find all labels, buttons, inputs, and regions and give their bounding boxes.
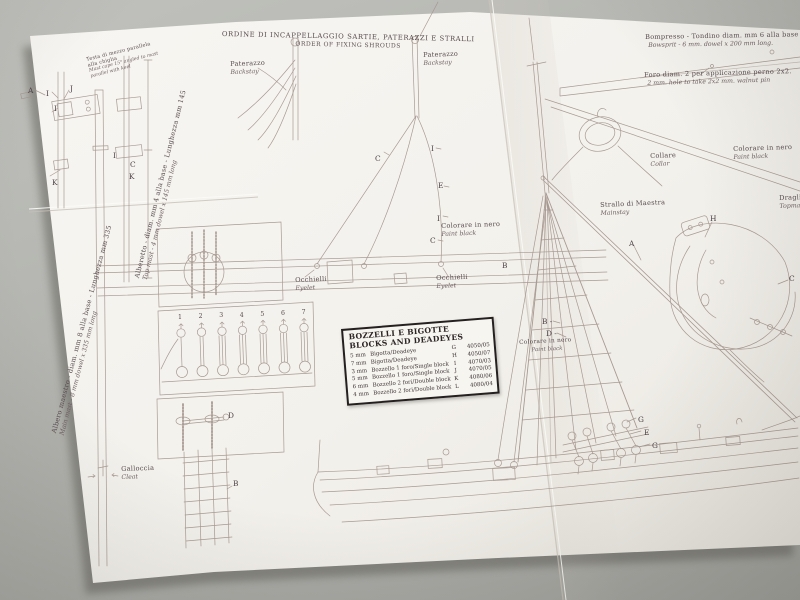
paper-sheet: [30, 12, 800, 583]
topmast-stay-label-italian: Draglia: [779, 193, 800, 202]
annotation-letter: K: [52, 178, 58, 187]
cleat-label-english: Cleat: [121, 472, 154, 481]
annotation-letter: D: [228, 411, 234, 420]
annotation-letter: I: [54, 104, 57, 113]
paint-black-label-mast: Colorare in nero Paint black: [519, 337, 572, 354]
parts-table-cell-letter: L: [452, 383, 463, 391]
eyelet-label-right: Occhielli Eyelet: [436, 273, 468, 291]
backstay-label-italian: Paterazzo: [423, 50, 458, 60]
eyelet-label-italian: Occhielli: [295, 275, 327, 285]
plan-sheet-line-art: [0, 0, 800, 600]
sequence-number: 7: [302, 309, 306, 316]
parts-table-cell-size: 4 mm: [353, 390, 373, 399]
parts-table-cell-letter: I: [450, 360, 461, 368]
collar-label: Collare Collar: [650, 151, 677, 169]
annotation-letter: C: [130, 160, 136, 169]
sequence-number: 2: [199, 313, 203, 320]
mainstay-label: Strallo di Maestra Mainstay: [600, 198, 666, 217]
annotation-letter: C: [789, 274, 795, 283]
annotation-letter: A: [629, 239, 634, 248]
parts-table-cell-letter: J: [451, 368, 462, 376]
backstay-label-italian: Paterazzo: [230, 59, 265, 69]
annotation-letter: A: [28, 86, 33, 95]
annotation-letter: G: [652, 441, 658, 450]
parts-table-cell-code: 4080/04: [462, 381, 493, 390]
sequence-number: 6: [281, 310, 285, 317]
annotation-letter: J: [70, 84, 73, 93]
annotation-letter: E: [438, 181, 443, 190]
collar-label-italian: Collare: [650, 151, 676, 160]
annotation-letter: I: [437, 214, 440, 223]
eyelet-label-english: Eyelet: [436, 281, 468, 290]
sequence-number: 5: [260, 311, 264, 318]
parts-table: BOZZELLI E BIGOTTE BLOCKS AND DEADEYES 5…: [341, 317, 500, 406]
parts-table-cell-letter: K: [451, 375, 462, 383]
sequence-number: 3: [219, 312, 223, 319]
annotation-letter: D -: [546, 329, 557, 338]
annotation-letter: B -: [542, 317, 552, 326]
sequence-number: 1: [178, 314, 182, 321]
eyelet-label-left: Occhielli Eyelet: [295, 275, 327, 293]
backstay-label-english: Backstay: [230, 67, 265, 76]
annotation-letter: K: [129, 172, 135, 181]
parts-table-cell-letter: G: [449, 345, 460, 353]
annotation-letter: C: [430, 236, 436, 245]
collar-label-english: Collar: [650, 160, 676, 169]
bowsprit-note: Bompresso - Tondino diam. mm 6 alla base…: [645, 30, 800, 50]
cleat-label: Galloccia Cleat: [121, 464, 155, 482]
eyelet-label-english: Eyelet: [295, 283, 327, 292]
photo-of-ship-plan-sheet: ORDINE DI INCAPPELLAGGIO SARTIE, PATERAZ…: [0, 0, 800, 600]
annotation-letter: H: [710, 214, 716, 223]
annotation-letter: G: [638, 415, 644, 424]
topmast-stay-label-english: Topmast: [779, 202, 800, 211]
eyelet-label-italian: Occhielli: [436, 273, 468, 283]
sequence-number: 4: [240, 312, 244, 319]
annotation-letter: B: [233, 479, 238, 488]
annotation-letter: I: [431, 144, 434, 153]
annotation-letter: B: [502, 261, 507, 270]
topmast-stay-label: Draglia Topmast: [779, 193, 800, 211]
backstay-label-english: Backstay: [423, 58, 458, 67]
backstay-label-left: Paterazzo Backstay: [230, 59, 265, 77]
parts-table-rows: 5 mmBigotta/DeadeyeG4050/057 mmBigotta/D…: [350, 343, 493, 399]
parts-table-cell-letter: H: [449, 353, 460, 361]
annotation-letter: E: [644, 428, 649, 437]
backstay-label-right: Paterazzo Backstay: [423, 50, 458, 68]
annotation-letter: C: [375, 154, 381, 163]
annotation-letter: I: [113, 151, 116, 160]
paint-black-label-center: Colorare in nero Paint black: [441, 220, 501, 239]
annotation-letter: I: [46, 89, 49, 98]
paint-black-label-bowsprit: Colorare in nero Paint black: [733, 143, 793, 162]
cleat-label-italian: Galloccia: [121, 464, 154, 474]
